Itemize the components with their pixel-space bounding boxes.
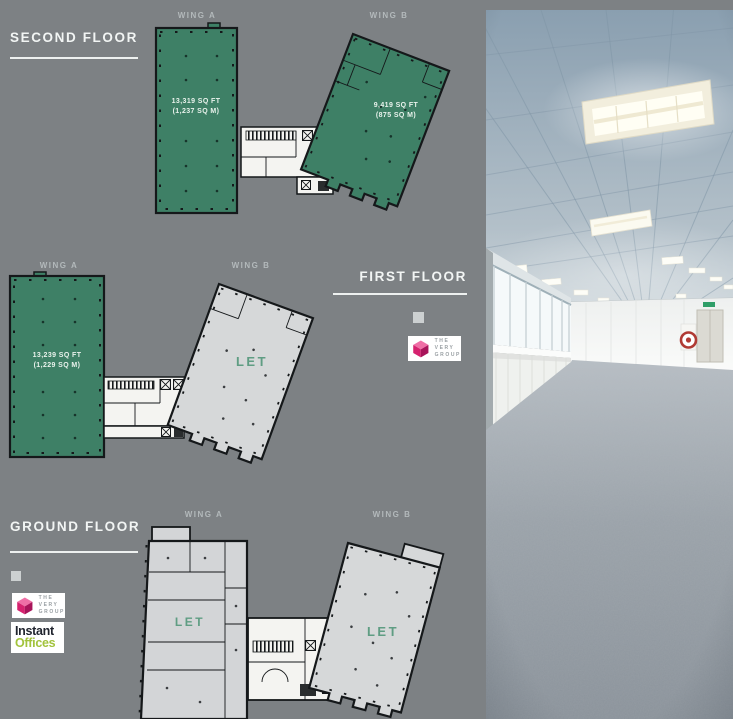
second-floor-title: SECOND FLOOR — [10, 30, 138, 45]
photo-vignette — [486, 10, 733, 719]
brochure-page: WING A WING B 13,319 SQ FT (1,237 SQ M) — [0, 0, 733, 719]
ground-wing-b-label: WING B — [373, 510, 412, 519]
ground-floor-plan: WING A WING B LET — [140, 510, 444, 719]
second-wing-b-label: WING B — [370, 11, 409, 20]
very-group-cube-icon — [411, 337, 431, 360]
office-interior-photo — [486, 10, 733, 719]
second-floor-rule — [10, 57, 138, 59]
second-wing-a-area-m: (1,237 SQ M) — [173, 108, 220, 115]
first-floor-legend-swatch — [413, 312, 424, 323]
instant-offices-logo: Instant Offices — [11, 622, 64, 653]
first-floor-plan: WING A WING B 13,239 SQ FT (1,229 SQ M) — [10, 261, 313, 466]
first-wing-b-let-label: LET — [236, 354, 268, 369]
second-wing-a-area-ft: 13,319 SQ FT — [172, 98, 221, 105]
first-floor-rule — [333, 293, 467, 295]
ground-floor-legend-swatch — [11, 571, 21, 581]
second-floor-plan: WING A WING B 13,319 SQ FT (1,237 SQ M) — [156, 11, 449, 213]
ground-wing-a-label: WING A — [185, 510, 223, 519]
ground-floor-rule — [10, 551, 138, 553]
ground-wing-b-let-label: LET — [367, 624, 399, 639]
second-wing-b-area-m: (875 SQ M) — [376, 112, 416, 119]
first-wing-b-shape — [165, 284, 313, 466]
instant-offices-word2: Offices — [15, 638, 55, 650]
first-wing-a-label: WING A — [40, 261, 78, 270]
very-group-wordmark: THE VERY GROUP — [435, 338, 461, 360]
second-wing-b-area-ft: 9,419 SQ FT — [374, 102, 419, 109]
first-floor-title: FIRST FLOOR — [333, 269, 467, 284]
first-wing-a-area-ft: 13,239 SQ FT — [33, 352, 82, 359]
very-group-wordmark: THE VERY GROUP — [39, 595, 65, 617]
second-wing-a-label: WING A — [178, 11, 216, 20]
first-wing-a-shape: 13,239 SQ FT (1,229 SQ M) — [10, 272, 104, 457]
very-group-logo: THE VERY GROUP — [408, 336, 461, 361]
first-wing-b-label: WING B — [232, 261, 271, 270]
very-group-cube-icon — [15, 594, 35, 617]
very-group-logo: THE VERY GROUP — [12, 593, 65, 618]
first-wing-a-area-m: (1,229 SQ M) — [34, 362, 81, 369]
ground-wing-a-let-label: LET — [175, 615, 205, 629]
ground-floor-title: GROUND FLOOR — [10, 519, 140, 534]
second-wing-a-shape: 13,319 SQ FT (1,237 SQ M) — [156, 23, 237, 213]
ground-wing-a-shape: LET — [140, 527, 248, 719]
